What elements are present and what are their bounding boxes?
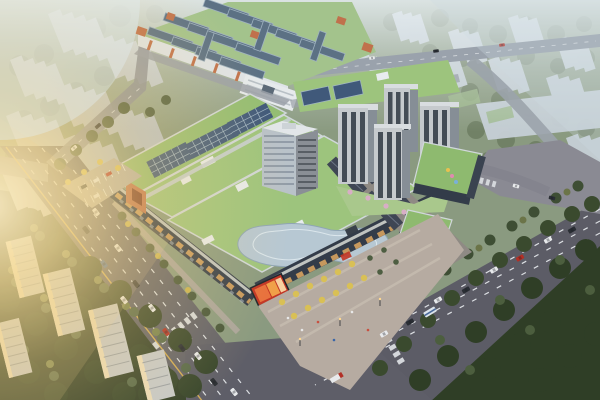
residential-tower [338, 104, 378, 184]
aerial-render [0, 0, 600, 400]
residential-tower [374, 124, 411, 200]
hotel-penthouse [282, 123, 296, 129]
render-canvas [0, 0, 600, 400]
